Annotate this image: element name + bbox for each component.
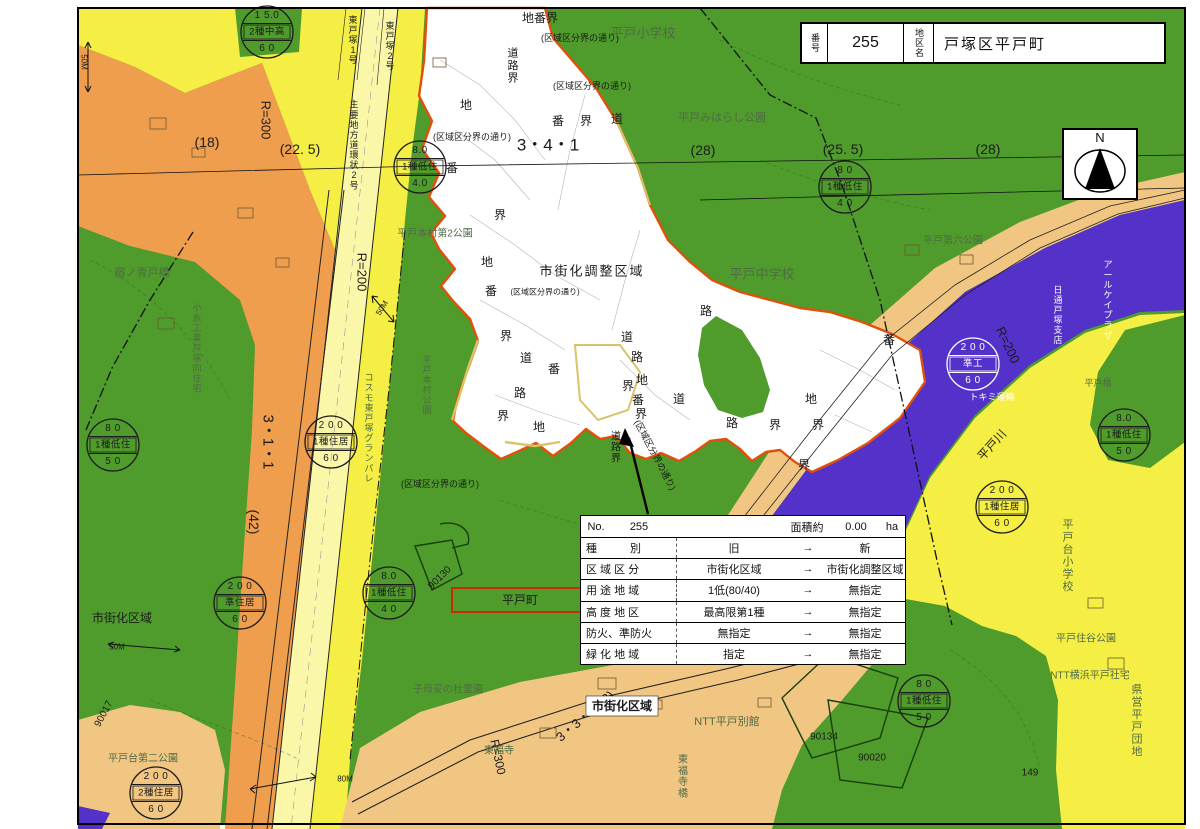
table-cell: → bbox=[791, 584, 825, 596]
label-temple: 東福寺 bbox=[484, 744, 514, 757]
table-cell: → bbox=[791, 648, 825, 660]
svg-text:市街化区域: 市街化区域 bbox=[592, 698, 652, 713]
svg-text:6 0: 6 0 bbox=[994, 518, 1009, 529]
svg-text:界: 界 bbox=[798, 458, 810, 472]
table-row: 高 度 地 区最高限第1種→無指定 bbox=[581, 601, 905, 622]
svg-text:(区域区分界の通り): (区域区分界の通り) bbox=[401, 478, 479, 489]
table-area-unit: ha bbox=[879, 521, 905, 533]
svg-text:塚: 塚 bbox=[1053, 315, 1062, 325]
table-cell: → bbox=[791, 563, 825, 575]
svg-text:寺: 寺 bbox=[678, 776, 688, 788]
svg-text:準住居: 準住居 bbox=[225, 597, 255, 609]
boundary-kanji: 界 bbox=[798, 458, 810, 472]
svg-text:NTT横浜平戸社宅: NTT横浜平戸社宅 bbox=[1050, 669, 1129, 682]
svg-text:2 0 0: 2 0 0 bbox=[319, 420, 344, 431]
svg-text:(28): (28) bbox=[976, 141, 1001, 157]
svg-text:界: 界 bbox=[769, 418, 781, 432]
svg-text:1種住居: 1種住居 bbox=[984, 501, 1020, 513]
svg-text:路: 路 bbox=[631, 349, 643, 364]
svg-text:界: 界 bbox=[494, 208, 506, 222]
svg-text:トキミ運輸: トキミ運輸 bbox=[969, 391, 1014, 402]
label-park: 平戸第六公園 bbox=[923, 234, 983, 247]
table-cell: → bbox=[791, 627, 825, 639]
label-facility: アールケイプラザ bbox=[1103, 260, 1112, 341]
svg-text:レ: レ bbox=[364, 473, 373, 483]
table-row: 種 別旧→新 bbox=[581, 537, 905, 558]
svg-text:50M: 50M bbox=[109, 643, 125, 652]
table-cell: → bbox=[791, 606, 825, 618]
svg-text:(区域区分界の通り): (区域区分界の通り) bbox=[541, 32, 619, 43]
svg-text:(22. 5): (22. 5) bbox=[280, 141, 320, 157]
boundary-kanji: 界 bbox=[500, 329, 512, 343]
svg-text:平戸小学校: 平戸小学校 bbox=[610, 26, 675, 41]
svg-text:R=300: R=300 bbox=[259, 101, 274, 140]
svg-text:平戸第六公園: 平戸第六公園 bbox=[923, 234, 983, 247]
svg-text:本: 本 bbox=[422, 374, 431, 385]
svg-text:地: 地 bbox=[533, 420, 545, 434]
svg-text:80M: 80M bbox=[337, 775, 353, 784]
boundary-kanji: 路 bbox=[631, 349, 643, 364]
svg-text:公: 公 bbox=[422, 395, 431, 405]
svg-text:塚: 塚 bbox=[385, 41, 394, 51]
table-cell: 指定 bbox=[677, 646, 791, 662]
svg-text:環: 環 bbox=[349, 150, 358, 160]
svg-text:界: 界 bbox=[611, 453, 621, 465]
svg-text:イ: イ bbox=[1103, 300, 1112, 310]
svg-text:準工: 準工 bbox=[963, 358, 983, 370]
svg-text:道: 道 bbox=[611, 112, 623, 126]
svg-text:戸: 戸 bbox=[348, 25, 357, 35]
svg-text:90134: 90134 bbox=[810, 732, 838, 743]
svg-text:R=200: R=200 bbox=[355, 253, 370, 292]
label-bridge: 平戸橋 bbox=[1084, 377, 1111, 388]
label-road-width: (42) bbox=[246, 510, 262, 535]
svg-text:6 0: 6 0 bbox=[148, 804, 163, 815]
svg-text:村: 村 bbox=[422, 384, 431, 395]
svg-text:市街化調整区域: 市街化調整区域 bbox=[539, 264, 644, 279]
svg-text:番: 番 bbox=[552, 114, 564, 128]
label-kuiki-line: (区域区分界の通り) bbox=[510, 287, 580, 297]
svg-text:糸: 糸 bbox=[192, 312, 201, 323]
svg-text:1種住居: 1種住居 bbox=[313, 436, 349, 448]
svg-text:日: 日 bbox=[1053, 285, 1062, 295]
svg-text:要: 要 bbox=[349, 110, 358, 120]
table-no-value: 255 bbox=[611, 521, 667, 533]
svg-text:2 0 0: 2 0 0 bbox=[144, 771, 169, 782]
svg-text:界: 界 bbox=[580, 114, 592, 128]
svg-text:地: 地 bbox=[481, 255, 493, 269]
boundary-kanji: 道 bbox=[611, 112, 623, 126]
svg-text:店: 店 bbox=[1053, 334, 1062, 345]
boundary-kanji: 路 bbox=[700, 303, 712, 318]
svg-text:3・4・1: 3・4・1 bbox=[517, 136, 579, 155]
svg-text:地: 地 bbox=[1132, 745, 1143, 758]
svg-text:路: 路 bbox=[508, 59, 519, 72]
svg-text:ス: ス bbox=[364, 383, 373, 393]
svg-text:県: 県 bbox=[1132, 683, 1143, 696]
svg-text:(区域区分界の通り): (区域区分界の通り) bbox=[510, 287, 580, 297]
svg-text:2 0 0: 2 0 0 bbox=[990, 485, 1015, 496]
label-road-name: 3・4・1 bbox=[517, 136, 579, 155]
label-road-name: 東戸塚2号 bbox=[385, 20, 394, 71]
label-road-width: (18) bbox=[195, 134, 220, 150]
svg-text:平戸住谷公園: 平戸住谷公園 bbox=[1056, 632, 1116, 645]
svg-text:界: 界 bbox=[508, 71, 519, 84]
boundary-kanji: 地 bbox=[533, 420, 545, 434]
boundary-kanji: 道 bbox=[621, 330, 633, 344]
svg-text:1種低住: 1種低住 bbox=[95, 439, 131, 451]
svg-text:子母妥の杜霊園: 子母妥の杜霊園 bbox=[413, 683, 483, 696]
boundary-kanji: 界 bbox=[812, 418, 824, 432]
label-facility: トキミ運輸 bbox=[969, 391, 1014, 402]
table-cell: 市街化調整区域 bbox=[825, 561, 905, 577]
svg-text:8.0: 8.0 bbox=[412, 145, 427, 156]
svg-text:1 5.0: 1 5.0 bbox=[255, 10, 280, 21]
svg-text:2種住居: 2種住居 bbox=[138, 787, 174, 799]
svg-text:道: 道 bbox=[508, 46, 519, 60]
boundary-kanji: 番 bbox=[446, 161, 458, 175]
label-zone: 市街化調整区域 bbox=[539, 264, 644, 279]
svg-text:界: 界 bbox=[497, 409, 509, 423]
svg-text:路: 路 bbox=[726, 415, 738, 430]
label-facility: NTT平戸別館 bbox=[694, 714, 759, 728]
svg-text:市街化区域: 市街化区域 bbox=[92, 610, 152, 625]
boundary-kanji: 番 bbox=[883, 333, 895, 347]
svg-text:6 0: 6 0 bbox=[965, 375, 980, 386]
label-radius: R=300 bbox=[259, 101, 274, 140]
table-cell: 無指定 bbox=[677, 625, 791, 641]
boundary-kanji: 界 bbox=[580, 114, 592, 128]
svg-text:ザ: ザ bbox=[1103, 330, 1112, 340]
table-no-label: No. bbox=[581, 521, 611, 533]
table-cell: 区 域 区 分 bbox=[581, 559, 677, 579]
svg-text:塚: 塚 bbox=[364, 423, 373, 433]
label-park: 平戸台第二公園 bbox=[108, 752, 178, 765]
svg-text:住: 住 bbox=[192, 372, 201, 383]
svg-text:界: 界 bbox=[812, 418, 824, 432]
svg-text:地: 地 bbox=[460, 98, 472, 112]
svg-text:4 0: 4 0 bbox=[837, 198, 852, 209]
svg-text:1種低住: 1種低住 bbox=[1106, 429, 1142, 441]
svg-text:(25. 5): (25. 5) bbox=[823, 141, 863, 157]
svg-text:営: 営 bbox=[1132, 695, 1143, 709]
svg-text:戸: 戸 bbox=[385, 31, 394, 41]
svg-text:平戸みはらし公園: 平戸みはらし公園 bbox=[678, 111, 766, 124]
label-park: 平戸住谷公園 bbox=[1056, 632, 1116, 645]
table-cell: 新 bbox=[825, 540, 905, 556]
boundary-kanji: 界 bbox=[769, 418, 781, 432]
svg-text:6 0: 6 0 bbox=[259, 43, 274, 54]
svg-text:塚: 塚 bbox=[348, 35, 357, 45]
svg-text:東: 東 bbox=[364, 402, 373, 413]
district-number-value: 255 bbox=[828, 24, 904, 62]
label-cemetery: 子母妥の杜霊園 bbox=[413, 683, 483, 696]
svg-text:塚: 塚 bbox=[192, 353, 201, 363]
svg-text:路: 路 bbox=[611, 441, 621, 454]
svg-text:4 0: 4 0 bbox=[381, 604, 396, 615]
boundary-kanji: 地 bbox=[481, 255, 493, 269]
boundary-kanji: 地 bbox=[460, 98, 472, 112]
label-school: 平戸台小学校 bbox=[1063, 519, 1074, 593]
svg-text:2: 2 bbox=[387, 51, 392, 61]
svg-text:ラ: ラ bbox=[364, 443, 373, 453]
label-zone-boxed: 市街化区域 bbox=[586, 696, 658, 716]
svg-text:平: 平 bbox=[422, 355, 431, 365]
label-kuiki-line: (区域区分界の通り) bbox=[433, 131, 511, 142]
label-parcel-number: 90020 bbox=[858, 753, 886, 764]
svg-text:東: 東 bbox=[678, 753, 688, 766]
svg-text:番: 番 bbox=[485, 284, 497, 298]
svg-text:6 0: 6 0 bbox=[323, 453, 338, 464]
table-area-value: 0.00 bbox=[833, 521, 879, 533]
label-school: 平戸小学校 bbox=[610, 26, 675, 41]
compass-needle-icon bbox=[1085, 148, 1115, 189]
label-road-width: (28) bbox=[691, 142, 716, 158]
svg-text:8.0: 8.0 bbox=[1116, 413, 1131, 424]
svg-text:道: 道 bbox=[349, 139, 358, 150]
boundary-kanji: 道 bbox=[673, 392, 685, 406]
label-bridge: 東福寺橋 bbox=[678, 753, 688, 800]
svg-text:路: 路 bbox=[700, 303, 712, 318]
svg-text:番: 番 bbox=[632, 393, 644, 407]
table-cell: 防火、準防火 bbox=[581, 623, 677, 643]
label-radius: R=200 bbox=[355, 253, 370, 292]
svg-text:平戸町: 平戸町 bbox=[502, 593, 538, 607]
svg-text:モ: モ bbox=[364, 393, 373, 403]
svg-text:1: 1 bbox=[350, 45, 355, 55]
svg-text:通: 通 bbox=[1053, 295, 1062, 305]
svg-text:道: 道 bbox=[520, 351, 532, 365]
district-name-value: 戸塚区平戸町 bbox=[934, 24, 1164, 62]
map-canvas: 地番界道路界(区域区分界の通り)(区域区分界の通り)(区域区分界の通り)(区域区… bbox=[0, 0, 1200, 829]
svg-text:号: 号 bbox=[385, 61, 394, 71]
svg-text:界: 界 bbox=[635, 407, 647, 421]
svg-text:149: 149 bbox=[1022, 768, 1039, 779]
svg-text:支: 支 bbox=[1053, 324, 1062, 335]
svg-text:主: 主 bbox=[349, 99, 358, 110]
svg-text:プ: プ bbox=[1103, 310, 1112, 320]
label-dorokai: 道路界 bbox=[508, 46, 519, 85]
label-dorokai: 道路界 bbox=[611, 429, 621, 464]
svg-text:東: 東 bbox=[385, 20, 394, 31]
svg-text:1種低住: 1種低住 bbox=[402, 161, 438, 173]
svg-text:4.0: 4.0 bbox=[412, 178, 427, 189]
svg-text:ー: ー bbox=[1103, 270, 1112, 280]
svg-text:戸: 戸 bbox=[364, 413, 373, 423]
svg-text:園: 園 bbox=[422, 405, 431, 415]
svg-text:道: 道 bbox=[611, 429, 621, 442]
svg-text:パ: パ bbox=[364, 463, 373, 473]
svg-text:ル: ル bbox=[1103, 280, 1112, 290]
svg-text:5 0: 5 0 bbox=[105, 456, 120, 467]
svg-text:90020: 90020 bbox=[858, 753, 886, 764]
svg-text:(18): (18) bbox=[195, 134, 220, 150]
table-cell: 高 度 地 区 bbox=[581, 602, 677, 622]
svg-text:東福寺: 東福寺 bbox=[484, 744, 514, 757]
label-chibankai: 地番界 bbox=[522, 11, 558, 25]
svg-text:6 0: 6 0 bbox=[232, 614, 247, 625]
label-kuiki-line: (区域区分界の通り) bbox=[541, 32, 619, 43]
svg-text:道: 道 bbox=[673, 392, 685, 406]
svg-text:5 0: 5 0 bbox=[916, 712, 931, 723]
svg-text:8 0: 8 0 bbox=[105, 423, 120, 434]
table-cell: 無指定 bbox=[825, 582, 905, 598]
table-cell: 用 途 地 域 bbox=[581, 580, 677, 600]
svg-text:(42): (42) bbox=[246, 510, 262, 535]
label-facility: 日通戸塚支店 bbox=[1053, 285, 1062, 345]
svg-text:戸: 戸 bbox=[422, 365, 431, 375]
svg-text:号: 号 bbox=[349, 180, 358, 190]
svg-text:1種低住: 1種低住 bbox=[906, 695, 942, 707]
district-name-label: 地区名 bbox=[904, 24, 934, 62]
label-road-width: (25. 5) bbox=[823, 141, 863, 157]
label-road-name: 東戸塚1号 bbox=[348, 14, 357, 65]
label-housing: 小糸工業戸塚向住宅 bbox=[192, 303, 201, 394]
svg-text:番: 番 bbox=[883, 333, 895, 347]
svg-text:(区域区分界の通り): (区域区分界の通り) bbox=[433, 131, 511, 142]
svg-text:50M: 50M bbox=[80, 54, 89, 70]
label-park: 平戸みはらし公園 bbox=[678, 111, 766, 124]
boundary-kanji: 地 bbox=[805, 392, 817, 406]
table-cell: 緑 化 地 域 bbox=[581, 644, 677, 664]
boundary-kanji: 界 bbox=[622, 379, 634, 393]
label-road-width: (28) bbox=[976, 141, 1001, 157]
svg-text:福: 福 bbox=[678, 764, 688, 777]
svg-text:2種中高: 2種中高 bbox=[249, 26, 285, 38]
label-zone: 市街化区域 bbox=[92, 610, 152, 625]
svg-text:宅: 宅 bbox=[192, 382, 201, 393]
svg-text:NTT平戸別館: NTT平戸別館 bbox=[694, 714, 759, 728]
svg-text:2 0 0: 2 0 0 bbox=[228, 581, 253, 592]
label-facility: NTT横浜平戸社宅 bbox=[1050, 669, 1129, 682]
svg-text:道: 道 bbox=[621, 330, 633, 344]
svg-text:(区域区分界の通り): (区域区分界の通り) bbox=[553, 80, 631, 91]
svg-text:号: 号 bbox=[348, 55, 357, 65]
svg-text:路: 路 bbox=[514, 385, 526, 400]
svg-text:ラ: ラ bbox=[1103, 320, 1112, 330]
label-housing: コスモ東戸塚グランパレ bbox=[364, 373, 373, 484]
label-parcel-number: 90134 bbox=[810, 732, 838, 743]
svg-text:小: 小 bbox=[1063, 555, 1074, 568]
table-cell: 無指定 bbox=[825, 604, 905, 620]
table-header-row: No. 255 面積約 0.00 ha bbox=[581, 516, 905, 537]
svg-text:向: 向 bbox=[192, 362, 201, 373]
label-measure: 50M bbox=[109, 643, 125, 652]
svg-text:戸: 戸 bbox=[192, 343, 201, 353]
svg-text:工: 工 bbox=[192, 323, 201, 333]
boundary-kanji: 界 bbox=[497, 409, 509, 423]
svg-text:ア: ア bbox=[1103, 260, 1112, 270]
svg-text:1種低住: 1種低住 bbox=[371, 587, 407, 599]
boundary-kanji: 界 bbox=[635, 407, 647, 421]
svg-text:番: 番 bbox=[548, 362, 560, 376]
svg-text:学: 学 bbox=[1063, 566, 1074, 580]
boundary-kanji: 番 bbox=[485, 284, 497, 298]
svg-text:(28): (28) bbox=[691, 142, 716, 158]
table-cell: 無指定 bbox=[825, 646, 905, 662]
svg-text:宿ノ青戸橋: 宿ノ青戸橋 bbox=[115, 265, 170, 279]
svg-text:戸: 戸 bbox=[1063, 532, 1074, 544]
boundary-kanji: 番 bbox=[552, 114, 564, 128]
table-cell: 種 別 bbox=[581, 538, 677, 558]
table-cell: 旧 bbox=[677, 540, 791, 556]
svg-text:グ: グ bbox=[364, 432, 373, 443]
svg-text:平: 平 bbox=[1063, 519, 1074, 531]
svg-text:2 0 0: 2 0 0 bbox=[961, 342, 986, 353]
table-row: 用 途 地 域1低(80/40)→無指定 bbox=[581, 579, 905, 600]
svg-text:1種低住: 1種低住 bbox=[827, 181, 863, 193]
svg-text:8 0: 8 0 bbox=[916, 679, 931, 690]
label-parcel-number: 149 bbox=[1022, 768, 1039, 779]
svg-text:界: 界 bbox=[622, 379, 634, 393]
table-cell: 市街化区域 bbox=[677, 561, 791, 577]
label-park: 平戸本村公園 bbox=[422, 355, 431, 415]
label-park: 平戸本村第2公園 bbox=[397, 227, 473, 240]
svg-text:8 0: 8 0 bbox=[837, 165, 852, 176]
svg-text:番: 番 bbox=[446, 161, 458, 175]
svg-text:8.0: 8.0 bbox=[381, 571, 396, 582]
svg-text:地: 地 bbox=[636, 373, 648, 387]
svg-text:界: 界 bbox=[500, 329, 512, 343]
svg-text:5 0: 5 0 bbox=[1116, 446, 1131, 457]
boundary-kanji: 路 bbox=[514, 385, 526, 400]
svg-text:状: 状 bbox=[349, 159, 358, 170]
label-housing: 県営平戸団地 bbox=[1132, 683, 1143, 758]
boundary-kanji: 番 bbox=[548, 362, 560, 376]
label-road-width: (22. 5) bbox=[280, 141, 320, 157]
svg-text:戸: 戸 bbox=[1053, 305, 1062, 315]
change-table: No. 255 面積約 0.00 ha 種 別旧→新区 域 区 分市街化区域→市… bbox=[580, 515, 906, 665]
compass-north-label: N bbox=[1064, 130, 1136, 145]
boundary-kanji: 番 bbox=[632, 393, 644, 407]
svg-text:平戸本村第2公園: 平戸本村第2公園 bbox=[397, 227, 473, 240]
svg-text:地: 地 bbox=[349, 119, 358, 130]
svg-text:ン: ン bbox=[364, 453, 373, 463]
svg-text:東: 東 bbox=[348, 14, 357, 25]
svg-text:平戸橋: 平戸橋 bbox=[1084, 377, 1111, 388]
svg-text:平戸台第二公園: 平戸台第二公園 bbox=[108, 752, 178, 765]
svg-text:戸: 戸 bbox=[1132, 721, 1143, 733]
table-area-label: 面積約 bbox=[781, 519, 833, 535]
compass-rose: N bbox=[1062, 128, 1138, 200]
district-number-label: 番号 bbox=[802, 24, 828, 62]
table-cell: 1低(80/40) bbox=[677, 582, 791, 598]
svg-text:地: 地 bbox=[805, 392, 817, 406]
boundary-kanji: 地 bbox=[636, 373, 648, 387]
table-cell: → bbox=[791, 542, 825, 554]
table-row: 緑 化 地 域指定→無指定 bbox=[581, 643, 905, 664]
label-kuiki-line: (区域区分界の通り) bbox=[401, 478, 479, 489]
label-measure: 50M bbox=[80, 54, 89, 70]
table-row: 区 域 区 分市街化区域→市街化調整区域 bbox=[581, 558, 905, 579]
svg-text:ケ: ケ bbox=[1103, 290, 1112, 300]
label-road-name: 3・1・1 bbox=[260, 414, 277, 469]
boundary-kanji: 路 bbox=[726, 415, 738, 430]
label-school: 平戸中学校 bbox=[729, 267, 794, 282]
label-kuiki-line: (区域区分界の通り) bbox=[553, 80, 631, 91]
zoning-map-sheet: 地番界道路界(区域区分界の通り)(区域区分界の通り)(区域区分界の通り)(区域区… bbox=[0, 0, 1200, 829]
svg-text:業: 業 bbox=[192, 332, 201, 343]
table-row: 防火、準防火無指定→無指定 bbox=[581, 622, 905, 643]
svg-text:校: 校 bbox=[1063, 579, 1074, 593]
svg-text:地番界: 地番界 bbox=[522, 11, 558, 25]
svg-text:方: 方 bbox=[349, 129, 358, 140]
boundary-kanji: 道 bbox=[520, 351, 532, 365]
svg-text:平: 平 bbox=[1132, 709, 1143, 721]
table-cell: 無指定 bbox=[825, 625, 905, 641]
svg-text:平戸中学校: 平戸中学校 bbox=[729, 267, 794, 282]
svg-text:3・1・1: 3・1・1 bbox=[260, 414, 277, 469]
